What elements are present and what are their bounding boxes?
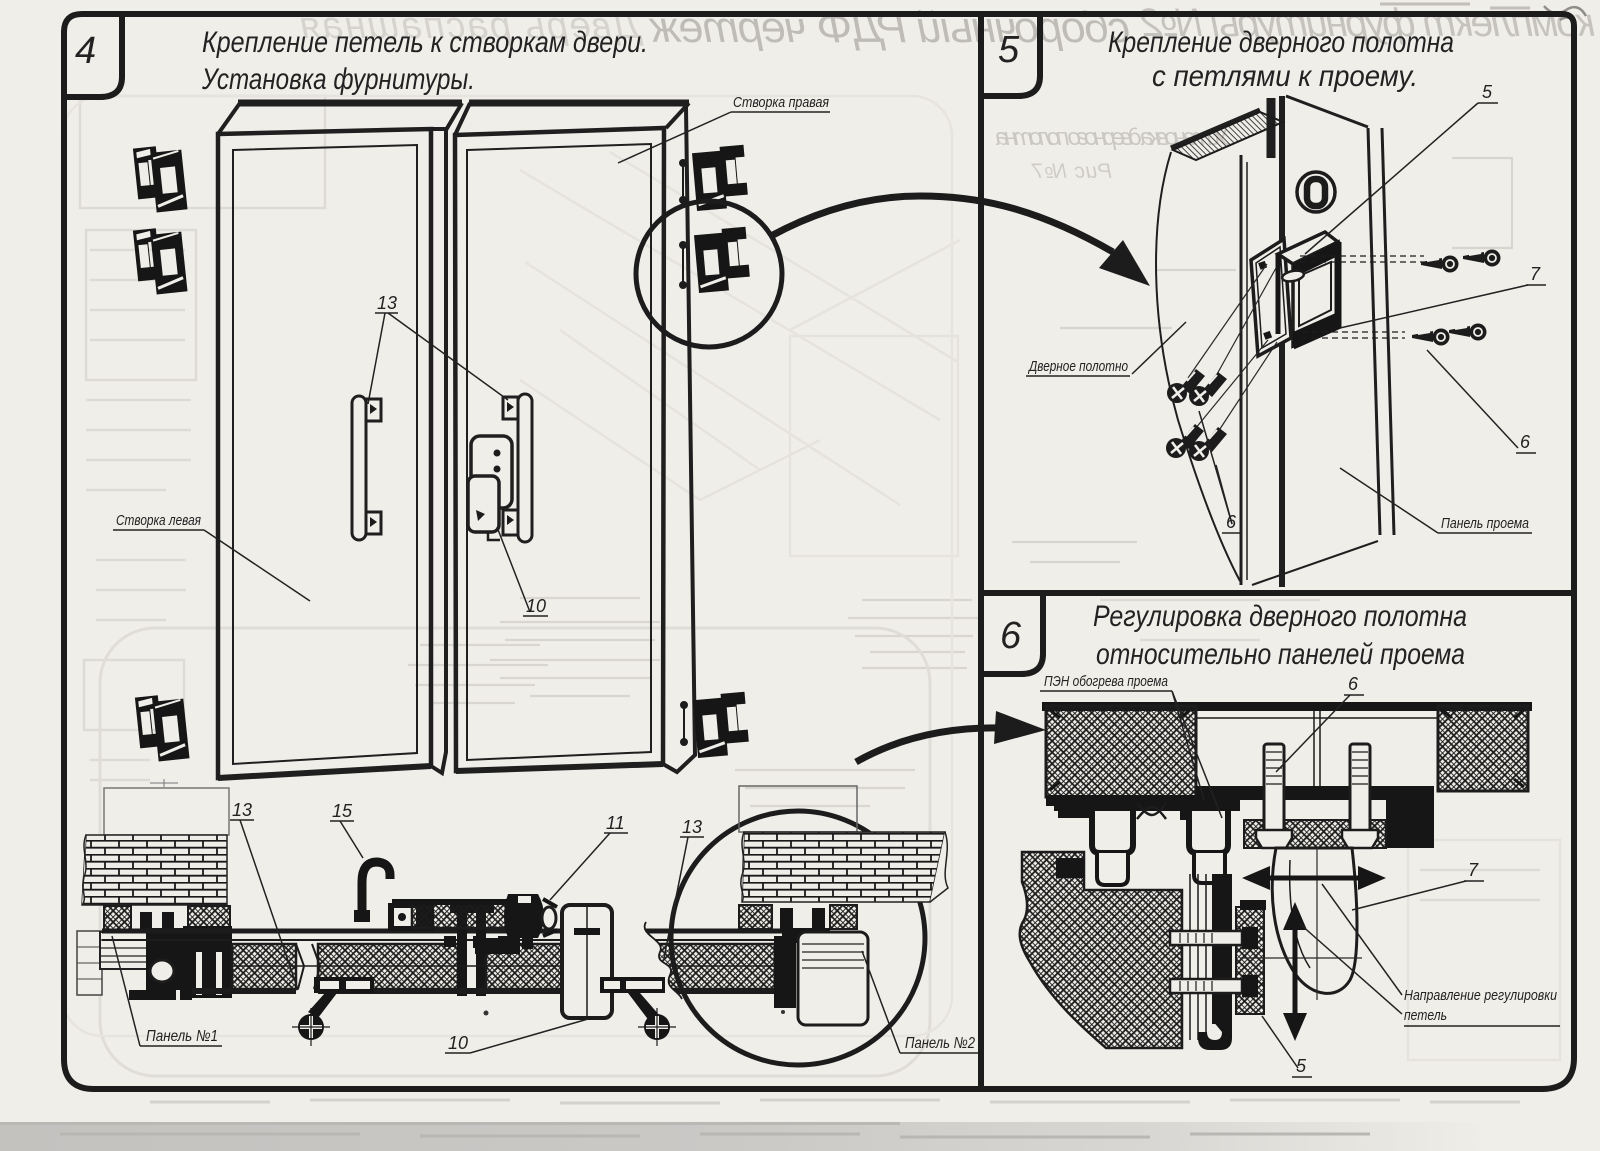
svg-text:7: 7 — [1530, 264, 1541, 284]
svg-text:Дверное полотно: Дверное полотно — [1027, 358, 1128, 375]
svg-text:6: 6 — [1520, 432, 1531, 452]
svg-text:Панель №2: Панель №2 — [905, 1035, 975, 1052]
svg-text:Створка левая: Створка левая — [116, 512, 201, 529]
svg-text:сборочный РДФ чертеж: сборочный РДФ чертеж — [648, 3, 1130, 52]
svg-text:ПЭН обогрева проема: ПЭН обогрева проема — [1044, 673, 1168, 690]
svg-text:с петлями к проему.: с петлями к проему. — [1152, 60, 1418, 93]
svg-text:11: 11 — [606, 813, 625, 833]
svg-text:Направление регулировки: Направление регулировки — [1404, 987, 1558, 1004]
svg-text:6: 6 — [1348, 674, 1359, 694]
svg-text:5: 5 — [1296, 1056, 1307, 1076]
svg-text:Панель №1: Панель №1 — [146, 1028, 218, 1045]
svg-text:4: 4 — [75, 30, 96, 72]
svg-text:10: 10 — [526, 596, 546, 616]
svg-text:петель: петель — [1404, 1007, 1447, 1024]
svg-text:15: 15 — [332, 801, 353, 821]
svg-text:13: 13 — [377, 293, 397, 313]
svg-text:5: 5 — [998, 29, 1020, 71]
svg-text:Установка фурнитуры.: Установка фурнитуры. — [201, 63, 475, 96]
svg-text:6: 6 — [1000, 615, 1022, 657]
svg-text:13: 13 — [232, 800, 252, 820]
svg-text:Крепление петель к створкам дв: Крепление петель к створкам двери. — [202, 26, 648, 59]
svg-text:7: 7 — [1468, 860, 1479, 880]
svg-text:10: 10 — [448, 1033, 468, 1053]
svg-text:Регулировка дверного полотна: Регулировка дверного полотна — [1093, 600, 1467, 633]
svg-text:Створка правая: Створка правая — [733, 94, 829, 111]
svg-text:относительно панелей проема: относительно панелей проема — [1096, 638, 1465, 671]
svg-text:Крепление дверного полотна: Крепление дверного полотна — [1108, 26, 1454, 59]
svg-text:13: 13 — [682, 817, 702, 837]
svg-text:5: 5 — [1482, 82, 1493, 102]
svg-text:Панель проема: Панель проема — [1441, 515, 1529, 532]
svg-text:Рис №7: Рис №7 — [1031, 160, 1112, 183]
